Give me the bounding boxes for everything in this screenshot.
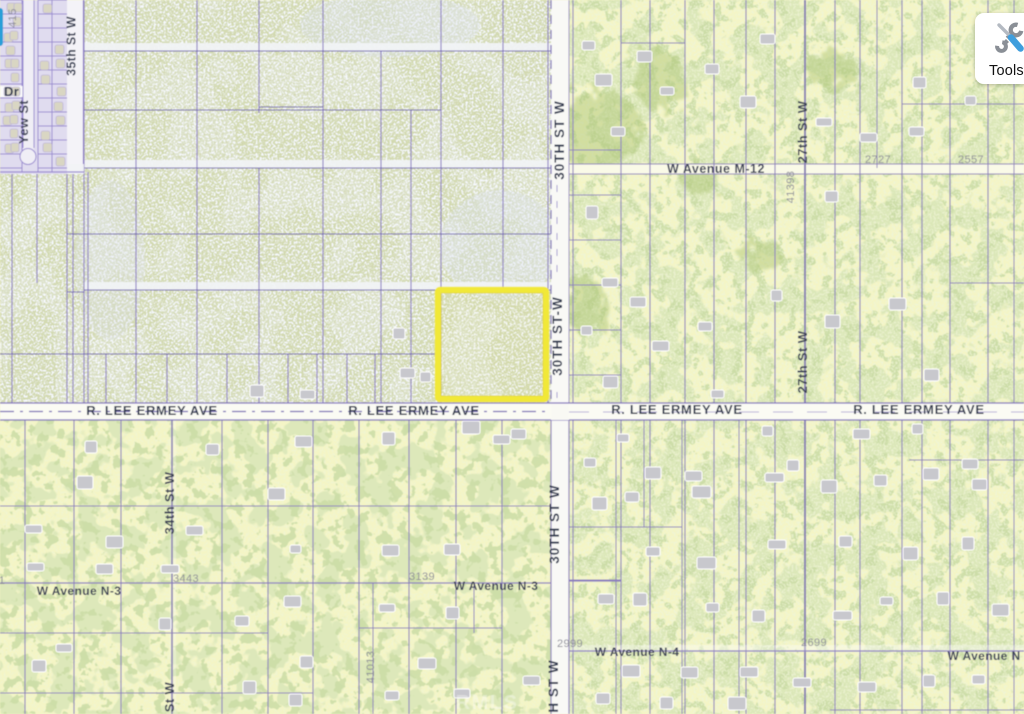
- svg-text:3139: 3139: [409, 571, 435, 583]
- svg-text:2727: 2727: [865, 154, 891, 166]
- svg-text:2557: 2557: [958, 154, 984, 166]
- svg-text:W Avenue N-3: W Avenue N-3: [454, 579, 539, 593]
- svg-text:34th St W: 34th St W: [162, 471, 177, 534]
- svg-text:41398: 41398: [785, 171, 797, 204]
- svg-text:35th St W: 35th St W: [65, 16, 79, 76]
- svg-text:H ST W: H ST W: [546, 659, 561, 712]
- svg-text:30TH ST W: 30TH ST W: [552, 100, 567, 180]
- svg-text:27th St W: 27th St W: [795, 100, 810, 163]
- svg-text:Yew St: Yew St: [16, 100, 31, 145]
- svg-text:St W: St W: [162, 681, 177, 712]
- svg-text:3443: 3443: [173, 573, 199, 585]
- svg-text:415: 415: [7, 8, 19, 28]
- svg-text:W Avenue M-12: W Avenue M-12: [667, 162, 765, 176]
- svg-text:27th St W: 27th St W: [795, 330, 810, 393]
- svg-text:Dr: Dr: [4, 84, 19, 99]
- svg-text:W Avenue N: W Avenue N: [947, 649, 1020, 663]
- svg-text:41013: 41013: [365, 651, 377, 684]
- svg-text:R. LEE ERMEY AVE: R. LEE ERMEY AVE: [86, 403, 218, 418]
- svg-text:RMLS: RMLS: [456, 692, 519, 714]
- svg-text:R. LEE ERMEY AVE: R. LEE ERMEY AVE: [853, 402, 985, 417]
- svg-text:W Avenue N-3: W Avenue N-3: [37, 584, 122, 598]
- svg-text:W Avenue N-4: W Avenue N-4: [595, 645, 680, 659]
- svg-text:2699: 2699: [801, 637, 827, 649]
- svg-text:R. LEE ERMEY AVE: R. LEE ERMEY AVE: [348, 403, 480, 418]
- svg-text:R. LEE ERMEY AVE: R. LEE ERMEY AVE: [611, 402, 743, 417]
- svg-text:2999: 2999: [557, 638, 583, 650]
- svg-text:Tools: Tools: [989, 63, 1024, 79]
- svg-text:1: 1: [0, 575, 5, 587]
- svg-text:30TH ST-W: 30TH ST-W: [550, 296, 565, 376]
- svg-text:30TH ST W: 30TH ST W: [547, 484, 562, 564]
